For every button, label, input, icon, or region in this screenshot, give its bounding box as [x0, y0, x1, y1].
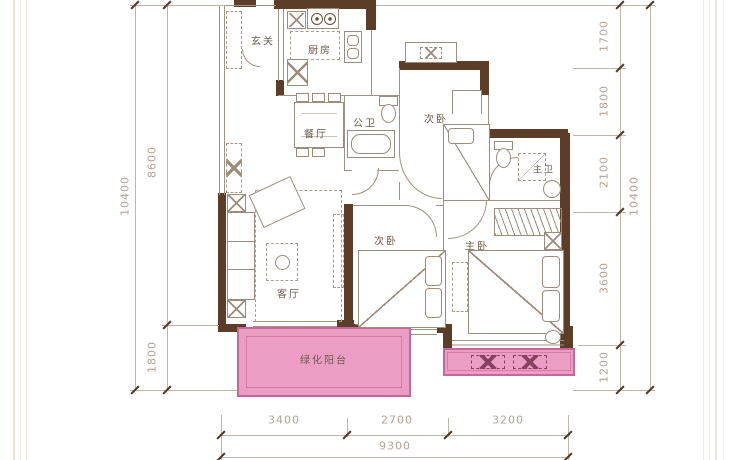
- dimension-bottom: 3400 2700 3200 9300: [0, 0, 750, 460]
- dim-label-3400: 3400: [268, 414, 300, 427]
- floorplan-canvas: 绿化阳台: [0, 0, 750, 460]
- dim-label-2700: 2700: [381, 414, 413, 427]
- dimension-line: [221, 435, 570, 436]
- dim-label-9300: 9300: [379, 440, 411, 453]
- dimension-line: [221, 457, 570, 458]
- dim-label-3200: 3200: [492, 414, 524, 427]
